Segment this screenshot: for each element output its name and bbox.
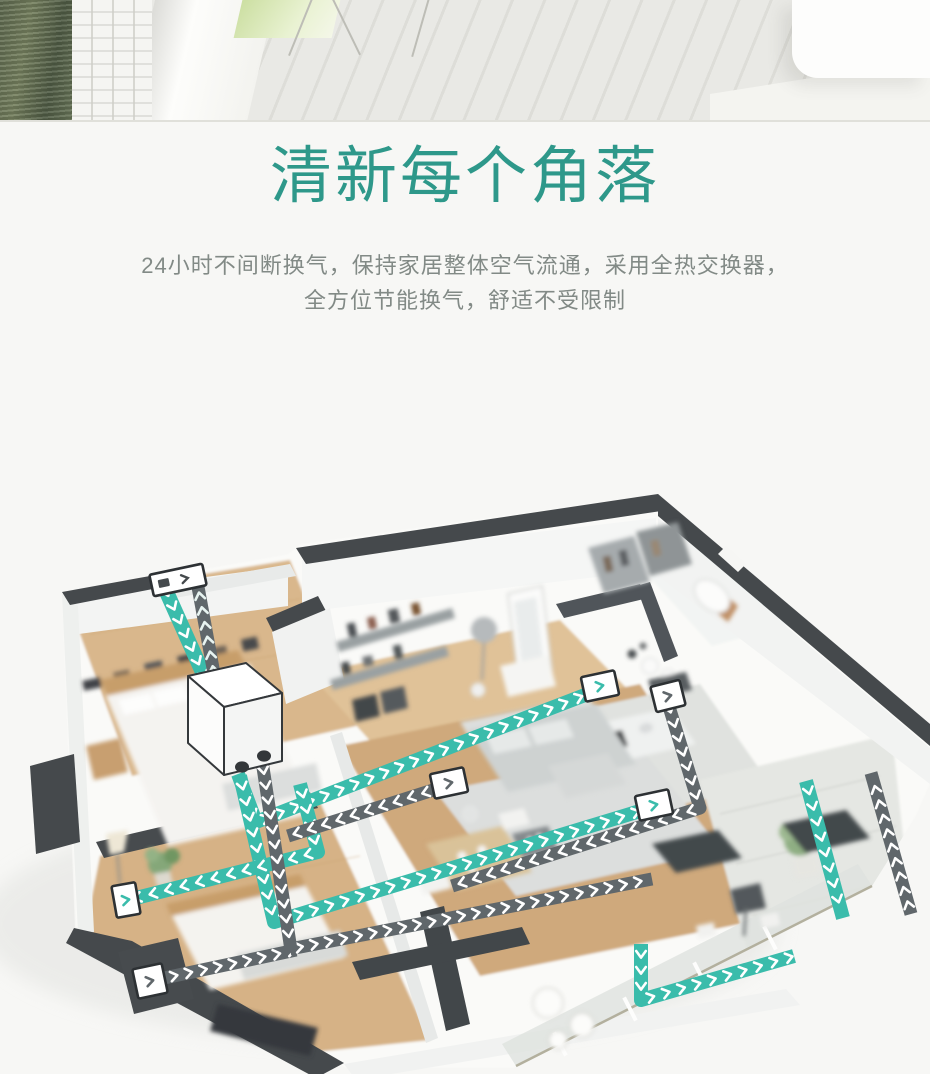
vent-dining	[635, 789, 673, 821]
unit-supply-port	[235, 761, 249, 772]
vent-hallway	[581, 670, 619, 702]
vent-kitchen	[650, 680, 685, 712]
photo-plants	[0, 0, 72, 122]
headline-line-2: 清新每个角落	[0, 136, 930, 218]
vent-living-room	[430, 767, 468, 799]
photo-white-sofa	[792, 0, 930, 78]
unit-return-port	[257, 750, 271, 761]
vent-bedroom-2-wall	[111, 882, 140, 918]
photo-brick-wall	[72, 0, 152, 122]
product-detail-page: 一机管理全屋空气 清新每个角落 24小时不间断换气，保持家居整体空气流通，采用全…	[0, 0, 930, 1074]
hero-photo	[0, 0, 930, 122]
photo-window-glass	[234, 0, 341, 38]
vent-bedroom-2-bottom	[132, 963, 168, 999]
subtitle-line-1: 24小时不间断换气，保持家居整体空气流通，采用全热交换器，	[0, 248, 930, 283]
page-subtitle: 24小时不间断换气，保持家居整体空气流通，采用全热交换器， 全方位节能换气，舒适…	[0, 248, 930, 318]
photo-bottom-edge	[0, 120, 930, 122]
subtitle-line-2: 全方位节能换气，舒适不受限制	[0, 283, 930, 318]
floorplan-illustration	[0, 484, 930, 1074]
